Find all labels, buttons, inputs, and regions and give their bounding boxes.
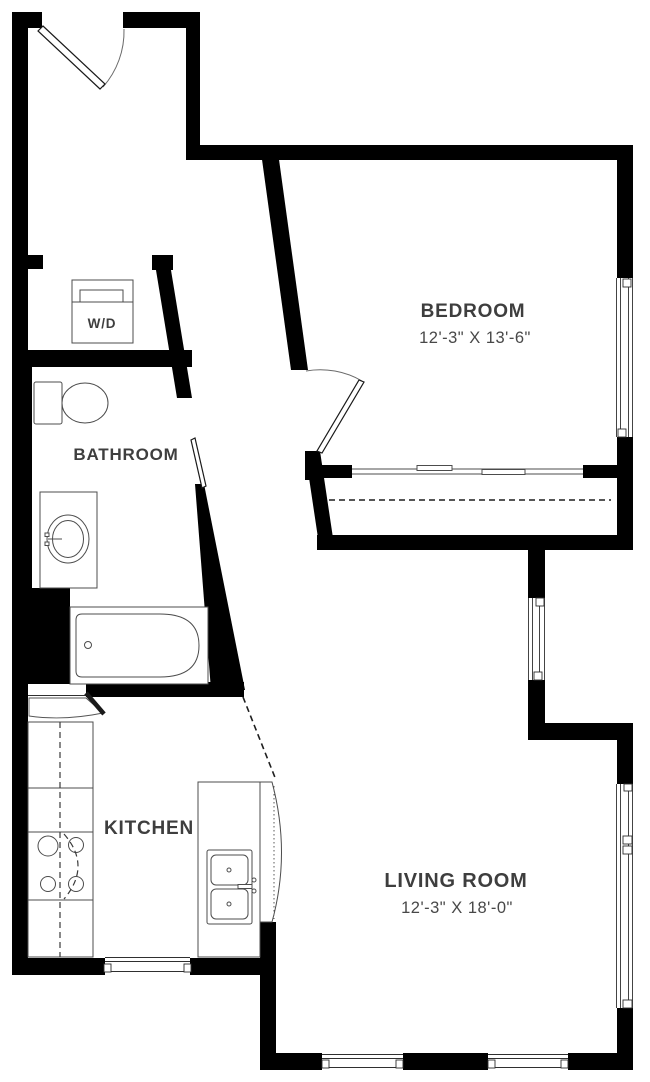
wall-right-upper — [617, 145, 633, 280]
washer-dryer-label: W/D — [88, 316, 117, 331]
wall-laundry-stub-left — [28, 255, 43, 269]
bathroom-door — [191, 438, 206, 488]
wall-right-above-window — [617, 740, 633, 784]
livingroom-bottom-window-right — [488, 1051, 568, 1070]
wall-bathroom-sw-block — [20, 588, 70, 695]
wall-bathroom-north — [12, 350, 192, 367]
wall-closet-right-stub — [583, 465, 617, 478]
side-step-window — [527, 598, 546, 680]
kitchen-counter — [28, 722, 93, 957]
bedroom-window — [615, 278, 633, 437]
kitchen-window — [104, 956, 191, 975]
kitchen-label: KITCHEN — [104, 818, 194, 839]
wall-livingroom-top-right — [528, 723, 633, 740]
wall-bedroom-door-hinge-stub — [305, 451, 319, 480]
floor-plan: BEDROOM 12'-3" X 13'-6" BATHROOM KITCHEN… — [0, 0, 650, 1082]
wall-closet-bottom — [317, 535, 633, 550]
wall-closet-top-stub — [317, 465, 352, 478]
kitchen-livingroom-dashed-break — [243, 697, 276, 780]
bathtub — [70, 607, 208, 684]
livingroom-bottom-window-left — [322, 1051, 403, 1070]
toilet — [34, 382, 108, 424]
livingroom-right-window — [615, 784, 633, 1008]
wall-top-left-of-entry — [12, 12, 42, 28]
wall-bottom — [260, 1053, 633, 1070]
bathroom-door-leaf — [191, 438, 206, 488]
closet-sliding-doors — [329, 466, 611, 501]
bedroom-label: BEDROOM — [421, 301, 526, 322]
livingroom-label: LIVING ROOM — [384, 870, 527, 892]
wall-inset-upper — [528, 550, 545, 598]
entry-door-leaf — [38, 26, 105, 89]
bathroom-label: BATHROOM — [73, 445, 178, 464]
wall-inset-lower — [528, 680, 545, 725]
bedroom-door-leaf — [317, 380, 364, 453]
bedroom-dimensions: 12'-3" X 13'-6" — [419, 329, 531, 347]
washer-dryer — [72, 280, 133, 343]
entry-door-swing-arc — [103, 29, 124, 87]
wall-livingroom-left — [260, 922, 276, 1070]
wall-right-mid — [617, 435, 633, 550]
bedroom-door-swing-arc — [306, 370, 362, 381]
fixtures — [28, 280, 611, 957]
bedroom-door — [306, 370, 364, 453]
livingroom-dimensions: 12'-3" X 18'-0" — [401, 899, 513, 917]
walls — [12, 12, 633, 1070]
bathroom-sink — [40, 492, 97, 588]
entry-door — [38, 26, 124, 89]
wall-bedroom-angled — [260, 145, 308, 370]
wall-entry-right — [186, 12, 200, 160]
wall-hall-angled — [154, 258, 192, 398]
wall-bedroom-top — [186, 145, 633, 160]
